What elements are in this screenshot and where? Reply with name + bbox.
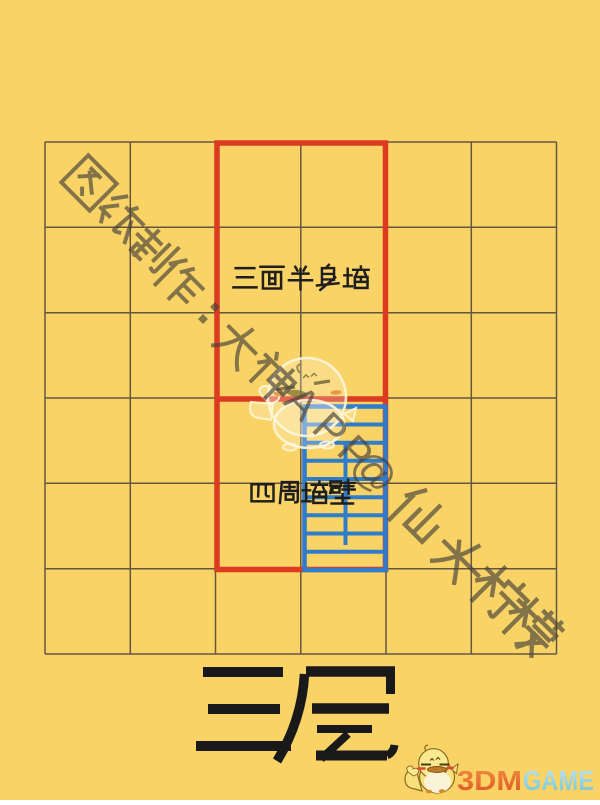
svg-text:3DM: 3DM bbox=[457, 765, 522, 796]
svg-text:GAME: GAME bbox=[523, 765, 594, 796]
